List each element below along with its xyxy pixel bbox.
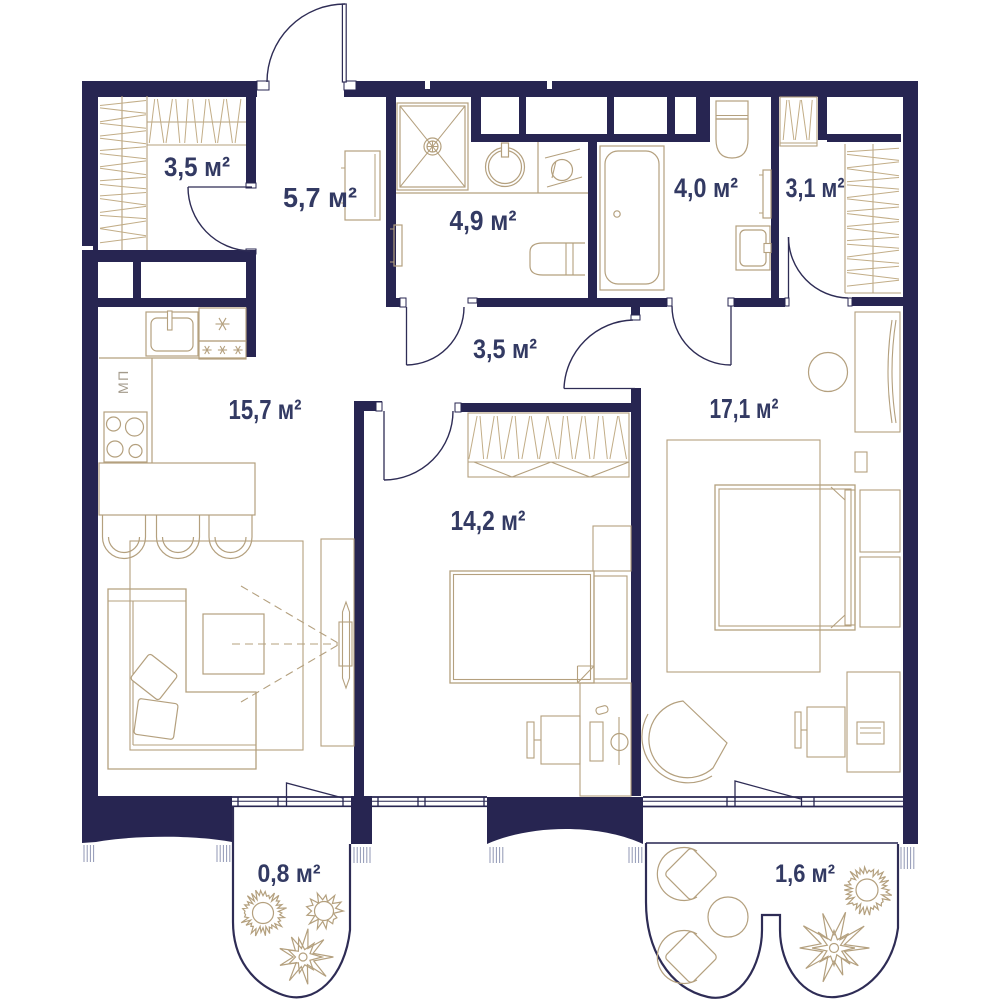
svg-text:17,1 м²: 17,1 м² [710, 393, 779, 424]
svg-text:14,2 м²: 14,2 м² [451, 505, 526, 536]
svg-text:15,7 м²: 15,7 м² [229, 394, 302, 425]
svg-text:1,6 м²: 1,6 м² [775, 860, 835, 888]
svg-text:0,8 м²: 0,8 м² [258, 860, 321, 888]
svg-text:3,1 м²: 3,1 м² [786, 173, 845, 203]
svg-text:МП: МП [115, 369, 131, 394]
svg-text:4,0 м²: 4,0 м² [674, 173, 738, 203]
svg-text:3,5 м²: 3,5 м² [164, 152, 230, 182]
svg-text:3,5 м²: 3,5 м² [473, 334, 537, 364]
svg-text:4,9 м²: 4,9 м² [450, 205, 517, 236]
svg-text:5,7 м²: 5,7 м² [283, 182, 357, 213]
